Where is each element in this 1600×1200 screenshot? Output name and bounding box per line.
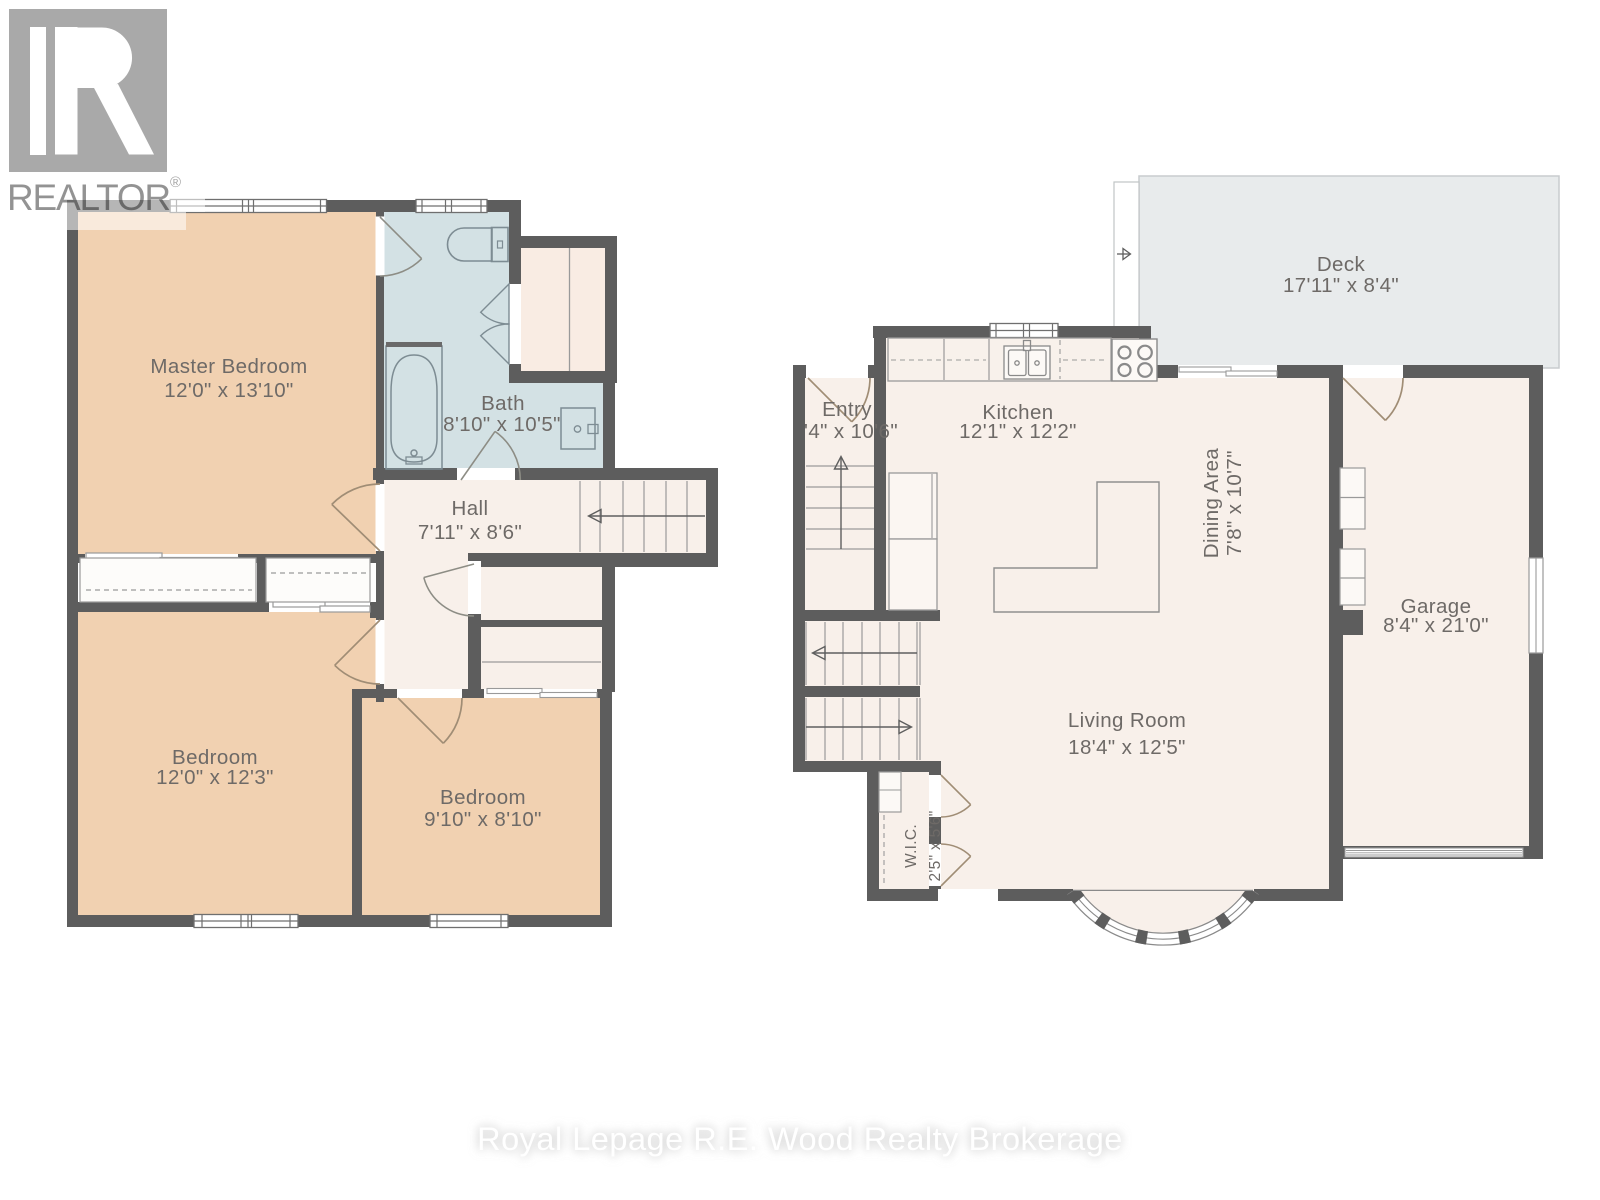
- svg-text:Deck: Deck: [1317, 253, 1366, 276]
- svg-text:Entry: Entry: [822, 398, 872, 421]
- svg-text:8'10" x 10'5": 8'10" x 10'5": [443, 413, 561, 436]
- svg-text:Living Room: Living Room: [1068, 709, 1186, 732]
- svg-text:9'10" x 8'10": 9'10" x 8'10": [424, 808, 542, 831]
- svg-text:7'11" x 8'6": 7'11" x 8'6": [418, 521, 522, 544]
- svg-text:12'0" x 13'10": 12'0" x 13'10": [164, 379, 293, 402]
- svg-text:Master Bedroom: Master Bedroom: [150, 355, 307, 378]
- svg-text:Bedroom: Bedroom: [440, 786, 526, 809]
- svg-text:W.I.C.: W.I.C.: [903, 824, 920, 868]
- svg-text:Bath: Bath: [481, 392, 525, 415]
- svg-text:'4" x 10'6": '4" x 10'6": [804, 420, 898, 443]
- svg-text:Dining Area: Dining Area: [1200, 448, 1223, 559]
- svg-text:7'8" x 10'7": 7'8" x 10'7": [1223, 450, 1246, 556]
- svg-text:Royal Lepage R.E. Wood Realty: Royal Lepage R.E. Wood Realty Brokerage: [477, 1121, 1123, 1157]
- svg-text:®: ®: [170, 174, 181, 191]
- svg-text:17'11" x 8'4": 17'11" x 8'4": [1283, 274, 1399, 297]
- svg-text:2'5" x 5'6": 2'5" x 5'6": [927, 810, 944, 881]
- svg-text:12'0" x 12'3": 12'0" x 12'3": [156, 766, 274, 789]
- svg-text:REALTOR: REALTOR: [7, 177, 170, 218]
- svg-text:Hall: Hall: [452, 497, 489, 520]
- svg-text:18'4" x 12'5": 18'4" x 12'5": [1068, 736, 1186, 759]
- svg-text:12'1" x 12'2": 12'1" x 12'2": [959, 420, 1077, 443]
- svg-text:8'4" x 21'0": 8'4" x 21'0": [1383, 614, 1489, 637]
